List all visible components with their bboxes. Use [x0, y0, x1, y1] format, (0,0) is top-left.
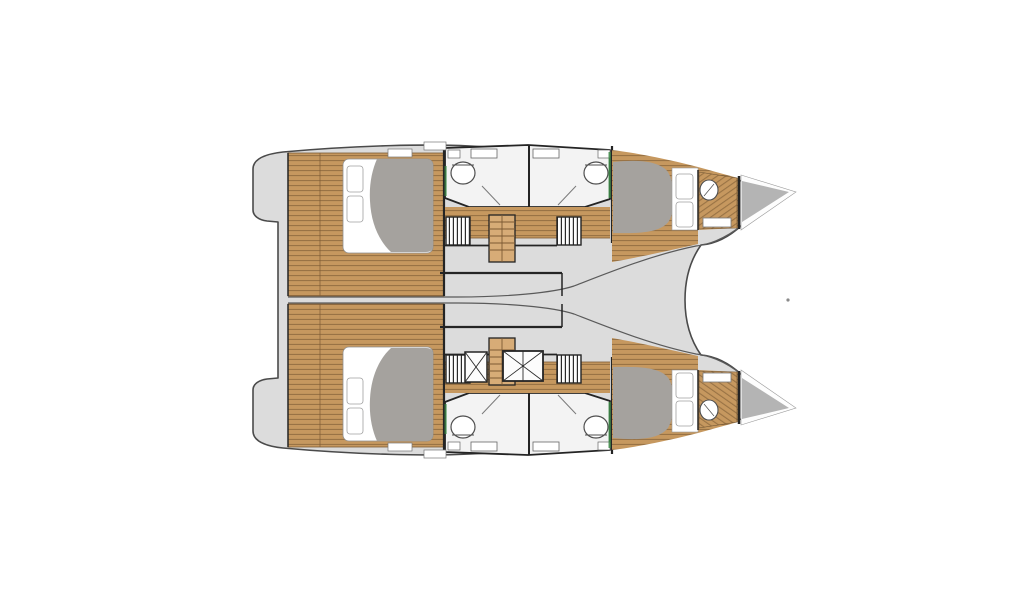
forward-berth-duvet [613, 161, 674, 233]
locker-forward-head [598, 150, 610, 158]
forward-berth-pillow-outboard [676, 174, 693, 199]
starboard-deck-hatches [465, 351, 543, 382]
wardrobe-louver-forward [557, 217, 581, 245]
wardrobe-louver-aft [446, 217, 470, 245]
washbasin-aft-head [471, 149, 497, 158]
aft-berth-pillow-outboard [347, 166, 363, 192]
aft-cabin [288, 146, 444, 296]
washbasin-forward-head [533, 149, 559, 158]
center-front-dot [786, 298, 789, 301]
aft-cabin-side-window [388, 149, 412, 157]
aft-berth-pillow-inboard [347, 196, 363, 222]
deck-fitting [424, 142, 446, 150]
port-hull [288, 142, 796, 297]
floorplan-canvas [0, 0, 1024, 600]
bow-section [699, 172, 796, 230]
deck-hatch-large [503, 351, 543, 381]
locker-aft-head [448, 150, 460, 158]
catamaran-deck-plan [0, 0, 1024, 600]
midship-heads [445, 145, 611, 207]
trim-strip-forward [609, 152, 611, 198]
forward-berth-pillow-inboard [676, 202, 693, 227]
bow-step [703, 218, 731, 227]
trim-strip-aft [445, 166, 447, 196]
deck-hatch-small [465, 352, 487, 382]
